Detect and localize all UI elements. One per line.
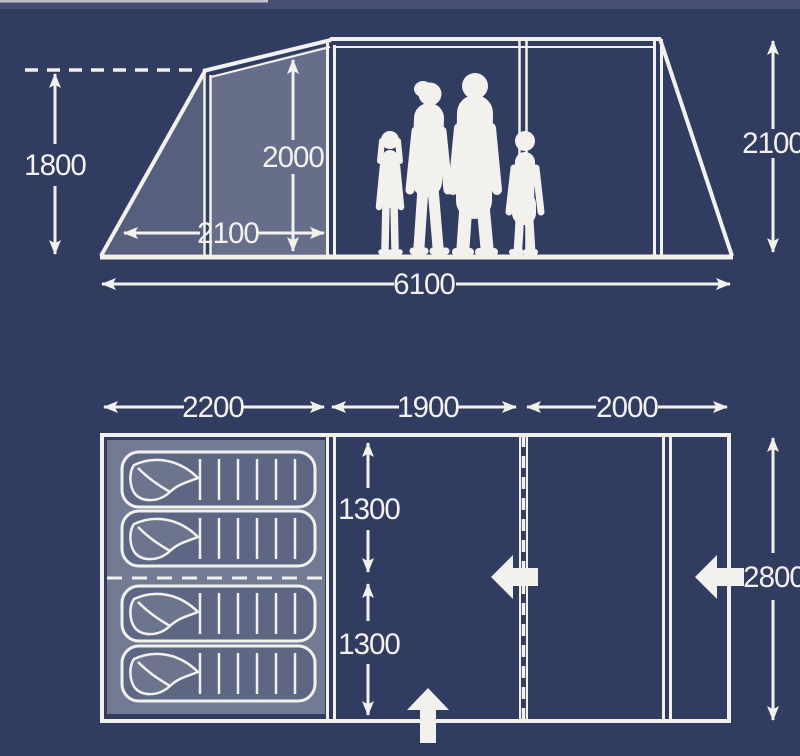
floor-plan: 2200 1900 2000 1300 1300 2800 <box>102 391 800 743</box>
tent-dimensions-diagram: 1800 2000 2100 6100 2100 <box>0 0 800 756</box>
side-view: 1800 2000 2100 6100 2100 <box>24 39 800 301</box>
rear-slope <box>660 39 732 256</box>
total-depth-label: 2800 <box>743 561 800 594</box>
figure-boy <box>509 131 541 252</box>
total-length-label: 6100 <box>393 268 455 301</box>
rear-height-label: 2100 <box>742 127 800 160</box>
sleeping-bag-icon <box>122 452 315 507</box>
front-height-label: 1800 <box>24 149 86 182</box>
middle-width-label: 1900 <box>397 391 459 424</box>
door-arrows <box>407 555 744 743</box>
sleeping-bag-icon <box>122 646 315 701</box>
door-arrow-bottom-icon <box>407 688 449 743</box>
door-arrow-right-icon <box>695 555 744 599</box>
figure-woman <box>410 81 448 251</box>
door-arrow-middle-icon <box>491 555 538 599</box>
bedroom-depth-top-label: 1300 <box>338 493 400 526</box>
front-depth-label: 2100 <box>197 217 259 250</box>
bedroom-depth-bottom-label: 1300 <box>338 628 400 661</box>
sleeping-bag-icon <box>122 586 315 641</box>
sleeping-bag-icon <box>122 511 315 566</box>
figure-man <box>453 73 497 252</box>
inner-height-label: 2000 <box>262 141 324 174</box>
figure-girl <box>379 131 401 252</box>
family-silhouette <box>379 73 541 252</box>
front-width-label: 2000 <box>596 391 658 424</box>
bedroom-width-label: 2200 <box>182 391 244 424</box>
top-edge-highlight <box>0 0 268 3</box>
